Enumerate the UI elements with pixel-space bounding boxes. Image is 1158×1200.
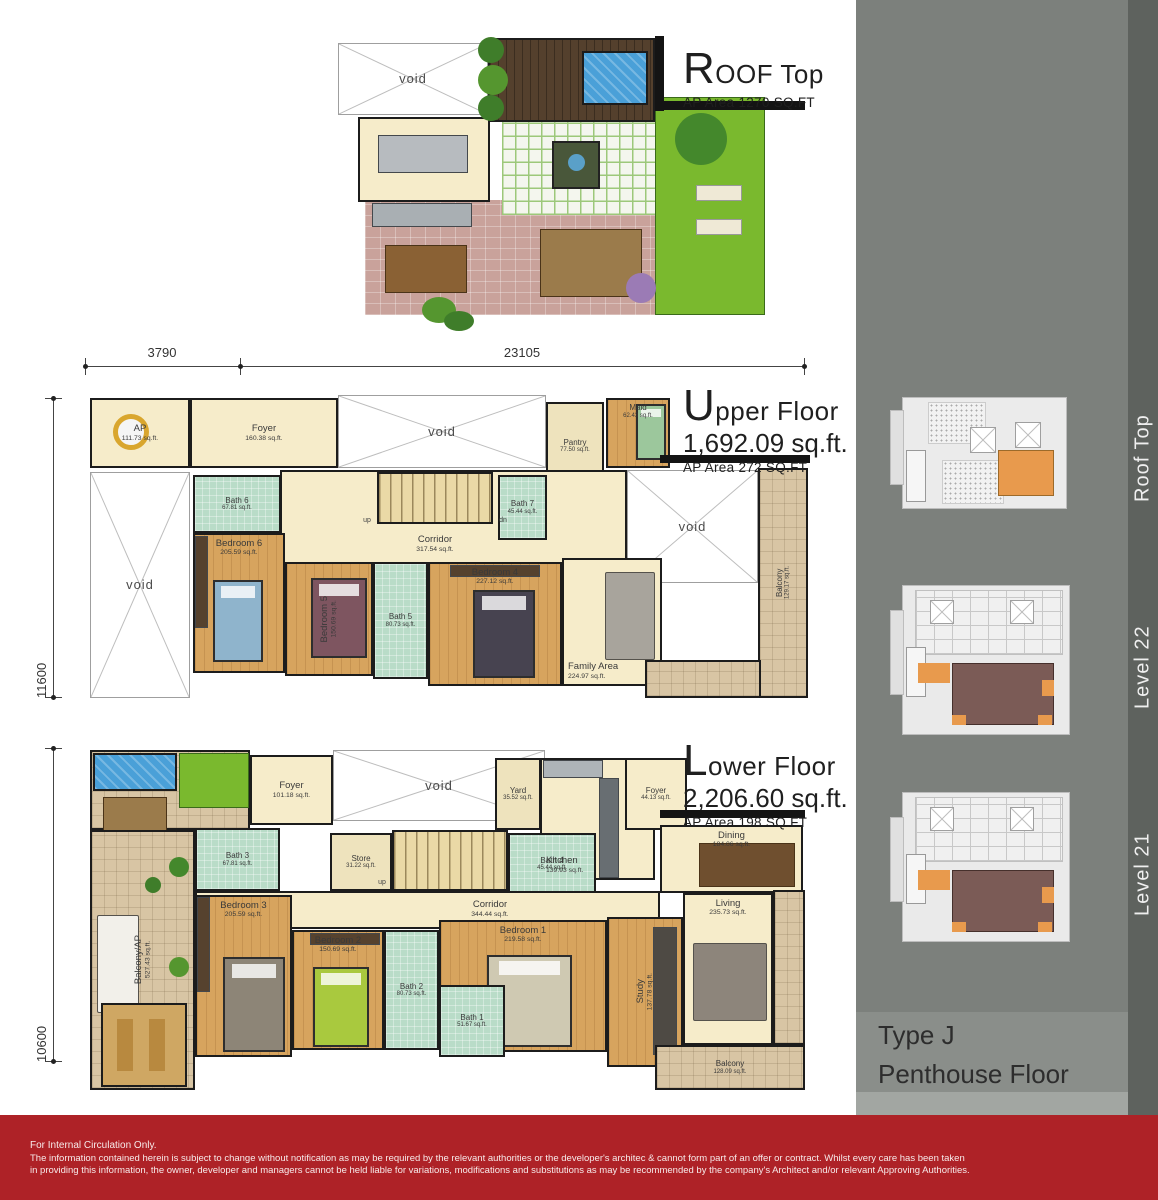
- dimension-dot: [51, 1059, 56, 1064]
- keyplan-level-22: [890, 585, 1090, 785]
- room-label: Bedroom 2: [315, 935, 361, 946]
- roof-title-rest: OOF Top: [715, 59, 824, 89]
- room-label: Foyer: [245, 423, 282, 434]
- desk: [653, 927, 677, 1055]
- plant: [444, 311, 474, 331]
- upper-area-line: AP Area 272 SQ.FT: [683, 460, 848, 475]
- sidebar-edge-strip: Roof Top Level 22 Level 21: [1128, 0, 1158, 1115]
- room-area: 205.59 sq.ft.: [216, 549, 262, 557]
- dim-upper-height: 11600: [34, 398, 49, 698]
- keyplan-wing: [890, 817, 904, 902]
- roof-bbq-counter: [372, 203, 472, 227]
- room-area: 101.18 sq.ft.: [273, 792, 310, 800]
- keyplan-roof-top: [890, 392, 1090, 542]
- room-corridor: Corridor317.54 sq.ft.: [355, 530, 515, 558]
- disclaimer-line2: The information contained herein is subj…: [30, 1153, 1135, 1165]
- kitchen-counter: [599, 778, 619, 878]
- room-label: void: [399, 71, 427, 87]
- room-area: 35.52 sq.ft.: [503, 795, 533, 802]
- room-balcony: Balcony128.09 sq.ft.: [655, 1045, 805, 1090]
- plant: [169, 857, 189, 877]
- room-area: 317.54 sq.ft.: [416, 546, 453, 554]
- keyplan-texture: [942, 460, 1004, 504]
- level-label-level-21: Level 21: [1128, 782, 1158, 967]
- dimension-line: [53, 748, 54, 1062]
- roof-jacuzzi: [582, 51, 648, 105]
- upper-title-text: Upper Floor: [683, 381, 848, 431]
- room-label: up: [378, 879, 386, 887]
- room-bath-1: Bath 151.67 sq.ft.: [439, 985, 505, 1057]
- dim-width-left: 3790: [148, 345, 177, 360]
- room-balcony: Balcony129.17 sq.ft.: [758, 468, 808, 698]
- wardrobe: [195, 536, 208, 628]
- level-label-level-22: Level 22: [1128, 575, 1158, 760]
- keyplan-unit-highlight: [1038, 922, 1052, 932]
- room-area: 77.50 sq.ft.: [560, 447, 590, 454]
- keyplan-unit-highlight: [998, 450, 1054, 496]
- room-void: void: [90, 472, 190, 698]
- stairs: [392, 830, 508, 891]
- dimension-dot: [51, 695, 56, 700]
- room-label: Dining: [713, 830, 750, 841]
- room-foyer: Foyer101.18 sq.ft.: [250, 755, 333, 825]
- plant: [478, 65, 508, 95]
- room-label: void: [679, 519, 707, 535]
- roof-title-text: ROOF Top: [683, 44, 824, 94]
- lower-title-text: Lower Floor: [683, 736, 848, 786]
- room-area: 45.44 sq.ft.: [508, 509, 538, 516]
- sofa: [693, 943, 767, 1021]
- bed: [213, 580, 263, 662]
- keyplan-unit-highlight: [1038, 715, 1052, 725]
- room-area: 527.43 sq.ft.: [144, 935, 152, 984]
- room-label: Foyer: [273, 780, 310, 791]
- wall: [655, 36, 664, 111]
- deck-post: [149, 1019, 165, 1071]
- plant: [169, 957, 189, 977]
- dim-width-main: 23105: [504, 345, 540, 360]
- room-foyer: Foyer160.38 sq.ft.: [190, 398, 338, 468]
- flower-bush: [626, 273, 656, 303]
- room-label: Balcony: [713, 1059, 746, 1069]
- room-void: void: [338, 395, 546, 468]
- room-up: up: [357, 516, 377, 527]
- room-area: 80.73 sq.ft.: [386, 622, 416, 629]
- room-area: 150.69 sq.ft.: [315, 946, 361, 954]
- dimension-dot: [238, 364, 243, 369]
- level-label-roof-top: Roof Top: [1128, 368, 1158, 548]
- keyplan-unit-highlight: [1042, 680, 1054, 696]
- roof-tree: [675, 113, 727, 165]
- room-label: Bath 6: [222, 496, 252, 506]
- room-label: Bedroom 5: [319, 596, 330, 642]
- room-ap: AP111.73 sq.ft.: [90, 398, 190, 468]
- lounge-chair: [696, 185, 742, 201]
- upper-title: Upper Floor 1,692.09 sq.ft. AP Area 272 …: [683, 381, 848, 475]
- room-bath-5: Bath 580.73 sq.ft.: [373, 562, 428, 679]
- room-area: 62.43 sq.ft.: [623, 413, 653, 420]
- keyplan-wing: [890, 410, 904, 485]
- bed: [223, 957, 285, 1052]
- room-label: Bath 5: [386, 612, 416, 622]
- room-label: Corridor: [416, 534, 453, 545]
- room-label: Yard: [503, 786, 533, 796]
- room-label: Bath 3: [223, 851, 253, 861]
- upper-sqft: 1,692.09 sq.ft.: [683, 428, 848, 459]
- roof-island: [385, 245, 467, 293]
- plan-type-title: Type J Penthouse Floor Plan: [856, 1012, 1128, 1092]
- room-label: AP: [122, 423, 158, 434]
- room-area: 67.81 sq.ft.: [223, 861, 253, 868]
- room-area: 51.67 sq.ft.: [457, 1022, 487, 1029]
- room-label: void: [126, 577, 154, 593]
- room-area: 80.73 sq.ft.: [397, 991, 427, 998]
- room-label: void: [428, 424, 456, 440]
- keyplan-core: [906, 450, 926, 502]
- keyplan-wing: [890, 610, 904, 695]
- roof-title-initial: R: [683, 44, 715, 93]
- room-label: Store: [346, 854, 376, 864]
- keyplan-shaft: [970, 427, 996, 453]
- keyplan-shaft: [930, 807, 954, 831]
- upper-title-initial: U: [683, 381, 715, 430]
- room-bath-6: Bath 667.81 sq.ft.: [193, 475, 281, 533]
- balcony-strip: [773, 890, 805, 1045]
- lower-title: Lower Floor 2,206.60 sq.ft. AP Area 198 …: [683, 736, 848, 830]
- room-area: 235.73 sq.ft.: [709, 909, 746, 917]
- room-yard: Yard35.52 sq.ft.: [495, 758, 541, 830]
- keyplan-unit-highlight: [952, 715, 966, 725]
- sidebar-light-band: [856, 1092, 1128, 1115]
- room-bath-2: Bath 280.73 sq.ft.: [384, 930, 439, 1050]
- room-label: dn: [499, 517, 507, 525]
- room-label: Bath 2: [397, 982, 427, 992]
- room-bath-3: Bath 367.81 sq.ft.: [195, 828, 280, 891]
- plant: [145, 877, 161, 893]
- dimension-line: [53, 398, 54, 698]
- disclaimer-footer: For Internal Circulation Only. The infor…: [0, 1115, 1158, 1200]
- roof-title: ROOF Top AP Area 1270 SQ.FT: [683, 44, 824, 110]
- room-area: 137.78 sq.ft.: [647, 973, 655, 1010]
- keyplan-shaft: [1010, 600, 1034, 624]
- room-label: Living: [709, 898, 746, 909]
- lounge-chair: [696, 219, 742, 235]
- dimension-line: [85, 366, 805, 367]
- room-area: 45.44 sq.ft.: [537, 865, 567, 872]
- keyplan-shaft: [1015, 422, 1041, 448]
- dimension-upper-left: 11600: [34, 398, 60, 698]
- room-label: Balcony/AP: [133, 935, 144, 984]
- dimension-lower-left: 10600: [34, 748, 60, 1062]
- bed: [313, 967, 369, 1047]
- room-label: Balcony: [775, 566, 785, 599]
- penthouse-floorplan-sheet: void AP111.73 sq.ft.Foyer160.38 sq.ft.vo…: [0, 0, 1158, 1200]
- roof-skylight: [378, 135, 468, 173]
- room-label: Family Area: [568, 661, 618, 672]
- dimension-top: 3790 23105: [85, 345, 805, 371]
- deck: [101, 1003, 187, 1087]
- bed: [473, 590, 535, 678]
- sofa: [605, 572, 655, 660]
- room-label: Bath 7: [508, 499, 538, 509]
- room-label: Study: [635, 973, 646, 1010]
- lower-sqft: 2,206.60 sq.ft.: [683, 783, 848, 814]
- keyplan-shaft: [1010, 807, 1034, 831]
- room-area: 224.97 sq.ft.: [568, 673, 618, 681]
- kitchen-counter: [543, 760, 603, 778]
- room-area: 31.22 sq.ft.: [346, 863, 376, 870]
- stairs: [377, 472, 493, 524]
- room-area: 129.17 sq.ft.: [784, 566, 791, 599]
- room-area: 205.59 sq.ft.: [220, 911, 266, 919]
- plan-type-line1: Type J: [878, 1016, 1128, 1055]
- lower-title-initial: L: [683, 736, 708, 785]
- room-label: Bath 1: [457, 1013, 487, 1023]
- keyplan-unit-highlight: [952, 922, 966, 932]
- lower-area-line: AP Area 198 SQ.FT: [683, 815, 848, 830]
- keyplan-unit-highlight: [918, 663, 950, 683]
- balcony-strip: [645, 660, 761, 698]
- keyplan-unit-highlight: [918, 870, 950, 890]
- room-area: 111.73 sq.ft.: [122, 435, 158, 443]
- disclaimer-line3: in providing this information, the owner…: [30, 1165, 1135, 1177]
- room-up: up: [373, 878, 391, 889]
- room-area: 184.06 sq.ft.: [713, 841, 750, 849]
- room-area: 227.12 sq.ft.: [472, 578, 518, 586]
- keyplan-unit-highlight: [1042, 887, 1054, 903]
- room-area: 128.09 sq.ft.: [713, 1069, 746, 1076]
- room-area: 344.44 sq.ft.: [471, 911, 508, 919]
- room-label: Maid: [623, 403, 653, 413]
- dimension-dot: [51, 746, 56, 751]
- room-area: 150.69 sq.ft.: [331, 596, 339, 642]
- room-foyer: Foyer44.13 sq.ft.: [625, 758, 687, 830]
- room-area: 44.13 sq.ft.: [641, 795, 671, 802]
- lawn: [179, 753, 249, 808]
- roof-fountain: [568, 154, 585, 171]
- dimension-dot: [51, 396, 56, 401]
- room-void: void: [338, 43, 488, 115]
- dimension-dot: [802, 364, 807, 369]
- room-area: 219.58 sq.ft.: [500, 936, 546, 944]
- pool: [93, 753, 177, 791]
- room-label: Bedroom 4: [472, 567, 518, 578]
- plant: [478, 37, 504, 63]
- room-label: Bedroom 3: [220, 900, 266, 911]
- room-label: void: [425, 778, 453, 794]
- keyplan-shaft: [930, 600, 954, 624]
- roof-area-line: AP Area 1270 SQ.FT: [683, 95, 824, 110]
- dimension-dot: [83, 364, 88, 369]
- room-label: up: [363, 517, 371, 525]
- room-label: Foyer: [641, 786, 671, 796]
- room-label: Bath 4: [537, 856, 567, 866]
- lower-title-rest: ower Floor: [708, 751, 836, 781]
- keyplan-level-21: [890, 792, 1090, 992]
- room-area: 160.38 sq.ft.: [245, 435, 282, 443]
- dining-table: [699, 843, 795, 887]
- upper-title-rest: pper Floor: [715, 396, 839, 426]
- disclaimer-line1: For Internal Circulation Only.: [30, 1140, 1158, 1151]
- room-label: Pantry: [560, 438, 590, 448]
- room-label: Bedroom 1: [500, 925, 546, 936]
- plant: [478, 95, 504, 121]
- wardrobe: [197, 897, 210, 992]
- dim-lower-height: 10600: [34, 748, 49, 1062]
- room-area: 67.81 sq.ft.: [222, 505, 252, 512]
- room-label: Corridor: [471, 899, 508, 910]
- room-label: Bedroom 6: [216, 538, 262, 549]
- deck-post: [117, 1019, 133, 1071]
